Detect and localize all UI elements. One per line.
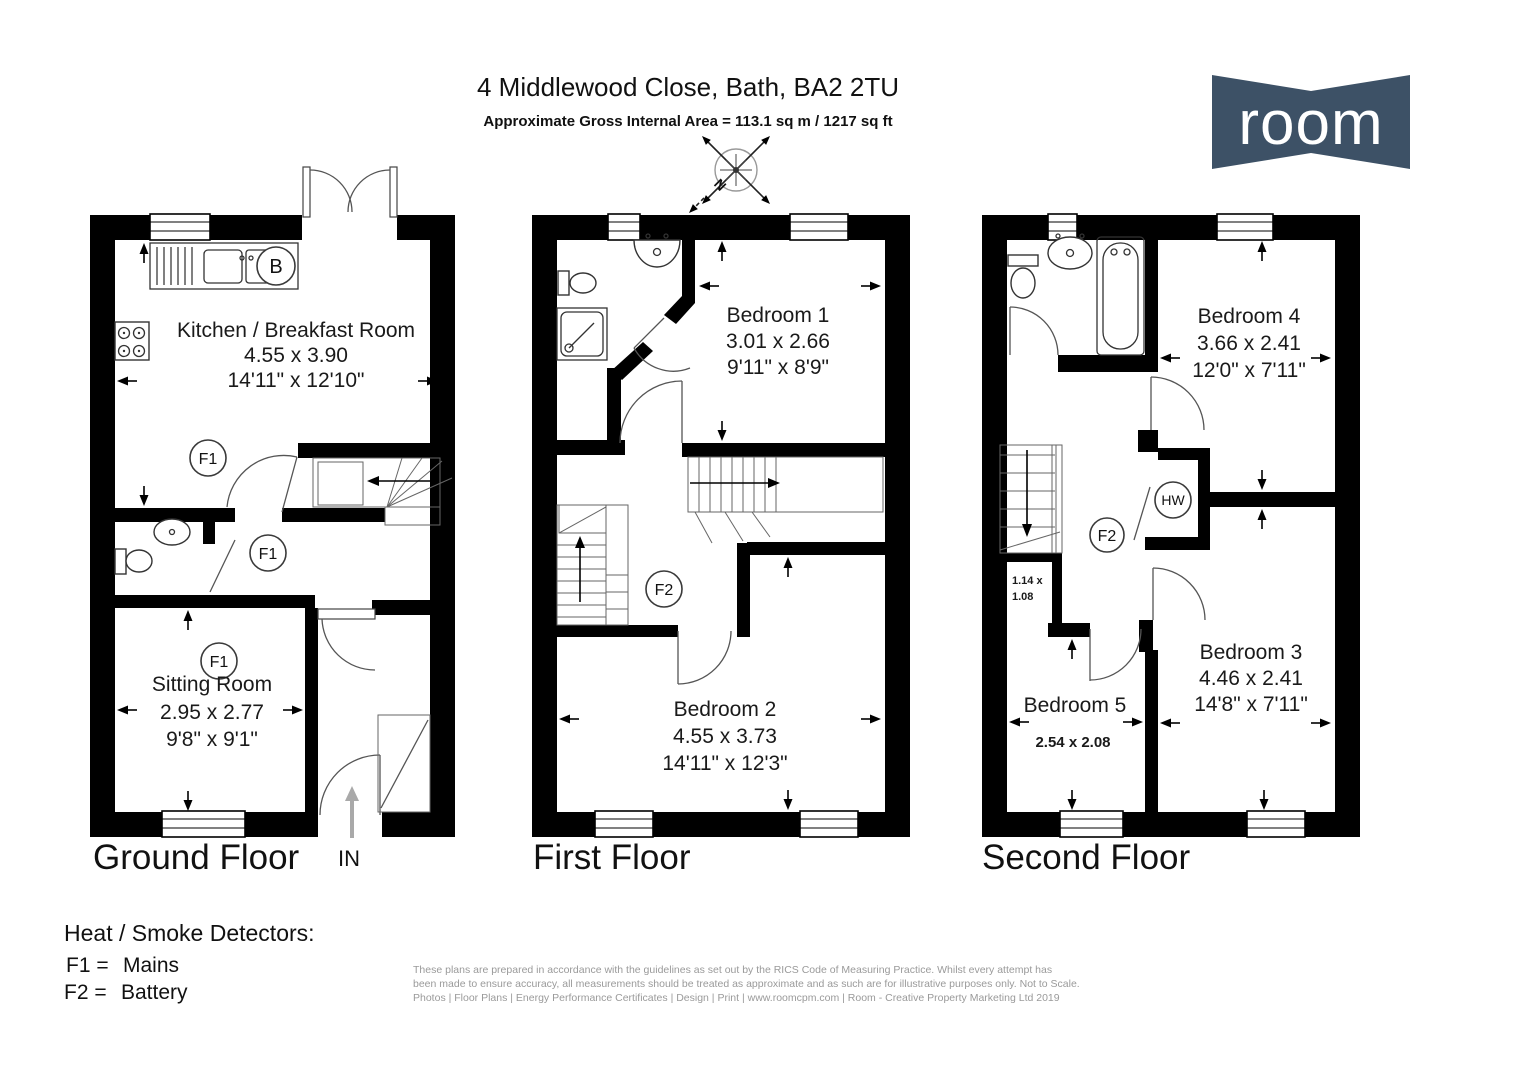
bedroom2-imperial: 14'11" x 12'3" [662,752,787,775]
room-logo-text: room [1238,89,1383,158]
first-floor-plan: F2 Bedroom 1 3.01 x 2.66 9'11" x 8'9" Be… [532,214,910,877]
page-title: 4 Middlewood Close, Bath, BA2 2TU [477,72,899,102]
bedroom1-metric: 3.01 x 2.66 [726,330,830,353]
disclaimer: These plans are prepared in accordance w… [413,964,1080,1004]
store-label: 1.14 x 1.08 [1012,575,1043,603]
second-floor-plan: HW F2 1.14 x 1.08 Bedroom 4 3.66 x 2.41 … [982,214,1360,877]
boiler-label: B [269,256,282,278]
window [595,811,653,837]
window [1048,214,1077,240]
hw-label: HW [1161,492,1185,508]
window [800,811,858,837]
floorplan-page: 4 Middlewood Close, Bath, BA2 2TU Approx… [0,0,1528,1080]
room-logo: room [1212,75,1410,169]
window [608,214,640,240]
bedroom3-name: Bedroom 3 [1200,641,1303,664]
french-doors [303,167,397,217]
bedroom1-imperial: 9'11" x 8'9" [727,356,829,379]
disclaimer-line3: Photos | Floor Plans | Energy Performanc… [413,992,1060,1004]
wc-fixtures [115,519,190,574]
bedroom3-metric: 4.46 x 2.41 [1199,667,1303,690]
smoke-detector-f1-kitchen: F1 [190,440,226,476]
window [1247,811,1305,837]
ground-floor-title: Ground Floor [93,838,300,877]
f2-first-label: F2 [655,582,674,599]
kitchen-label: Kitchen / Breakfast Room 4.55 x 3.90 14'… [177,319,415,392]
legend-title: Heat / Smoke Detectors: [64,920,315,946]
store-dim-line1: 1.14 x [1012,575,1043,587]
kitchen-imperial: 14'11" x 12'10" [228,369,365,392]
bedroom1-label: Bedroom 1 3.01 x 2.66 9'11" x 8'9" [726,304,830,379]
bedroom1-name: Bedroom 1 [727,304,830,327]
bedroom5-metric: 2.54 x 2.08 [1035,734,1110,751]
disclaimer-line2: been made to ensure accuracy, all measur… [413,978,1080,990]
entrance-arrow [345,786,359,838]
smoke-detector-f2-second: F2 [1090,518,1124,552]
sitting-imperial: 9'8" x 9'1" [166,728,258,751]
bedroom5-name: Bedroom 5 [1024,694,1127,717]
disclaimer-line1: These plans are prepared in accordance w… [413,964,1052,976]
store-dim-line2: 1.08 [1012,591,1033,603]
bedroom2-name: Bedroom 2 [674,698,777,721]
hot-water-marker: HW [1155,482,1191,518]
window [1217,214,1273,240]
hob [115,322,149,360]
bedroom4-metric: 3.66 x 2.41 [1197,332,1301,355]
detector-legend: Heat / Smoke Detectors: F1 = Mains F2 = … [64,920,315,1004]
bedroom4-name: Bedroom 4 [1198,305,1301,328]
floorplan-canvas: 4 Middlewood Close, Bath, BA2 2TU Approx… [0,0,1528,1080]
window [790,214,848,240]
sitting-name: Sitting Room [152,673,272,696]
f1-hall-label: F1 [259,546,278,563]
second-floor-title: Second Floor [982,838,1191,877]
bedroom3-imperial: 14'8" x 7'11" [1194,693,1308,716]
page-subtitle: Approximate Gross Internal Area = 113.1 … [483,113,892,130]
window [1060,811,1123,837]
ground-floor-walls [90,215,455,837]
page-header: 4 Middlewood Close, Bath, BA2 2TU Approx… [477,72,899,130]
smoke-detector-f2-first: F2 [646,571,682,607]
compass-icon: N [687,134,773,216]
f2-second-label: F2 [1098,528,1117,545]
f1-kitchen-label: F1 [199,451,218,468]
sitting-metric: 2.95 x 2.77 [160,701,264,724]
kitchen-name: Kitchen / Breakfast Room [177,319,415,342]
first-floor-stairs [557,457,883,625]
smoke-detector-f1-hall: F1 [250,535,286,571]
f1-sitting-label: F1 [210,654,229,671]
window [150,214,210,240]
legend-f2-value: Battery [121,981,188,1004]
boiler-marker: B [257,247,295,285]
second-floor-stairs [1000,445,1062,553]
bedroom2-label: Bedroom 2 4.55 x 3.73 14'11" x 12'3" [662,698,787,775]
sitting-room-label: Sitting Room 2.95 x 2.77 9'8" x 9'1" [152,673,272,751]
bedroom2-metric: 4.55 x 3.73 [673,725,777,748]
entrance-label: IN [338,846,360,871]
bathroom-fixtures [557,234,680,360]
legend-f1-value: Mains [123,954,179,977]
kitchen-metric: 4.55 x 3.90 [244,344,348,367]
ground-floor-plan: B [90,167,455,877]
window [162,811,245,837]
second-bathroom-fixtures [1008,234,1144,355]
bedroom4-imperial: 12'0" x 7'11" [1192,359,1306,382]
bedroom3-label: Bedroom 3 4.46 x 2.41 14'8" x 7'11" [1194,641,1308,716]
legend-f1-code: F1 = [66,954,109,977]
bedroom5-label: Bedroom 5 2.54 x 2.08 [1024,694,1127,751]
first-floor-title: First Floor [533,838,691,877]
bedroom4-label: Bedroom 4 3.66 x 2.41 12'0" x 7'11" [1192,305,1306,382]
legend-f2-code: F2 = [64,981,107,1004]
